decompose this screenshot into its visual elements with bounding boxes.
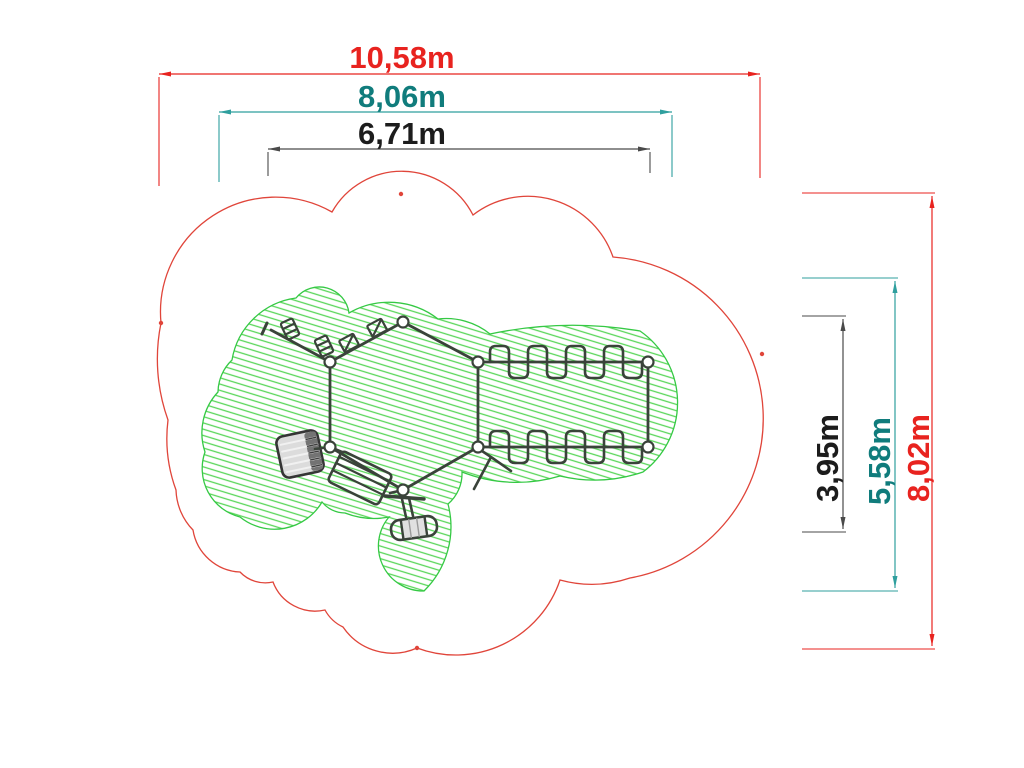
dim-label-play-area-width: 8,06m — [358, 79, 446, 114]
post — [473, 442, 484, 453]
dim-label-equipment-width: 6,71m — [358, 116, 446, 151]
post — [643, 442, 654, 453]
dim-label-safety-zone-height: 8,02m — [901, 414, 936, 502]
post — [398, 317, 409, 328]
post — [643, 357, 654, 368]
dim-label-play-area-height: 5,58m — [862, 417, 897, 505]
plan-drawing-canvas: 10,58m 8,06m 6,71m 3,95m 5,58m 8,02m — [0, 0, 1024, 768]
post — [325, 442, 336, 453]
drawing-page: 10,58m 8,06m 6,71m 3,95m 5,58m 8,02m — [0, 0, 1024, 768]
post — [398, 485, 409, 496]
climbing-platform — [275, 429, 325, 479]
dimension-equipment-width: 6,71m — [268, 116, 650, 176]
dim-label-equipment-height: 3,95m — [810, 414, 845, 502]
dimension-equipment-height: 3,95m — [802, 316, 846, 532]
dimension-safety-zone-width: 10,58m — [159, 40, 760, 186]
post — [473, 357, 484, 368]
post — [325, 357, 336, 368]
dim-label-safety-zone-width: 10,58m — [349, 40, 454, 75]
